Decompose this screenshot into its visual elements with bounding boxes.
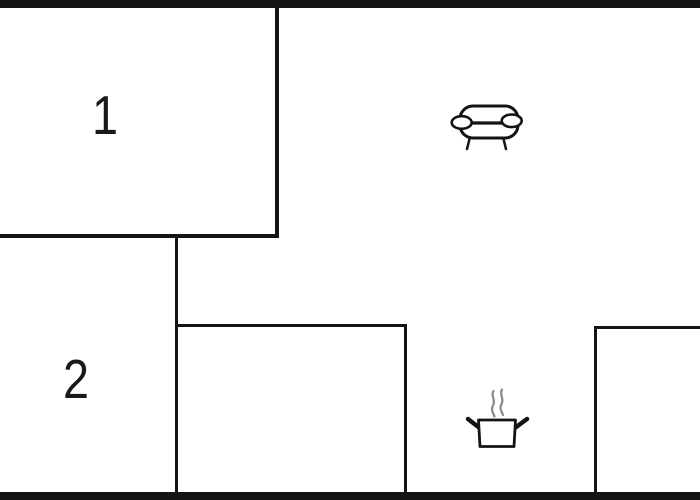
steam-icon [492,390,503,417]
wall-room2-right [175,234,178,492]
wall-midroom-top [175,324,407,327]
floorplan: 1 2 [0,0,700,500]
outer-wall-bottom [0,492,700,500]
room-2-label: 2 [42,349,110,409]
outer-wall-top [0,0,700,8]
wall-room1-right [275,0,279,238]
wall-bottomright-left [594,326,597,492]
cooking-pot-icon [460,386,530,452]
room-1-label: 1 [71,85,139,145]
wall-bottomright-top [594,326,700,329]
sofa-icon [449,99,529,153]
wall-midroom-right [404,324,407,492]
wall-room1-bottom [0,234,279,238]
